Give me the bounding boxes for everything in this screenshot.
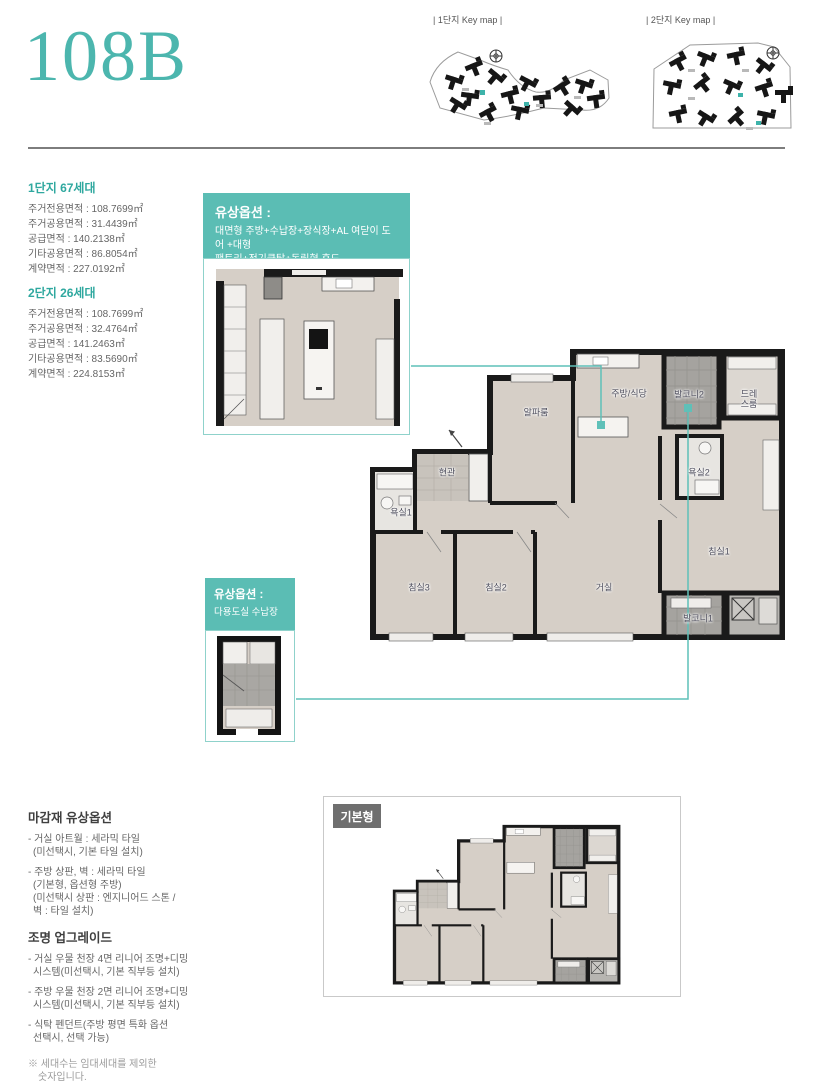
keymap1-label: | 1단지 Key map |: [433, 13, 502, 26]
note-line: 선택시, 선택 가능): [28, 1032, 233, 1045]
footnote-line2: 숫자입니다.: [28, 1071, 233, 1083]
stat-row: 계약면적 : 224.8153㎡: [28, 367, 143, 382]
stats-complex2: 2단지 26세대 주거전용면적 : 108.7699㎡ 주거공용면적 : 32.…: [28, 284, 143, 382]
stat-row: 기타공용면적 : 83.5690㎡: [28, 352, 143, 367]
main-floor-plan: [365, 340, 795, 650]
note-line: - 거실 아트월 : 세라믹 타일: [28, 833, 233, 846]
keymap2-site-plan: [638, 35, 803, 135]
note-line: 시스템(미선택시, 기본 직부등 설치): [28, 999, 233, 1012]
room-label-bath2: 욕실2: [688, 466, 710, 479]
stats-complex1: 1단지 67세대 주거전용면적 : 108.7699㎡ 주거공용면적 : 31.…: [28, 179, 143, 277]
stat-row: 계약면적 : 227.0192㎡: [28, 262, 143, 277]
room-label-bath1: 욕실1: [390, 506, 412, 519]
keymap1-site-plan: [424, 36, 614, 130]
stat-row: 주거전용면적 : 108.7699㎡: [28, 202, 143, 217]
note-line: - 주방 우물 천장 2면 리니어 조명+디밍: [28, 986, 233, 999]
stat-row: 주거공용면적 : 31.4439㎡: [28, 217, 143, 232]
room-label-living: 거실: [596, 581, 613, 594]
stat-row: 기타공용면적 : 86.8054㎡: [28, 247, 143, 262]
room-label-bedroom2: 침실2: [485, 581, 507, 594]
note-line: (미선택시, 기본 타일 설치): [28, 846, 233, 859]
room-label-balcony2: 발코니2: [674, 388, 704, 401]
note-line: (기본형, 옵션형 주방): [28, 879, 233, 892]
room-label-entrance: 현관: [439, 466, 456, 479]
utility-option-inset: [205, 630, 295, 742]
lighting-options-heading: 조명 업그레이드: [28, 932, 233, 945]
room-label-balcony1: 발코니1: [683, 612, 713, 625]
kitchen-option-title: 유상옵션 :: [215, 202, 398, 221]
utility-option-callout: 유상옵션 : 다용도실 수납장: [205, 578, 295, 630]
notes-block: 마감재 유상옵션 - 거실 아트월 : 세라믹 타일 (미선택시, 기본 타일 …: [28, 812, 233, 1083]
stat-row: 공급면적 : 140.2138㎡: [28, 232, 143, 247]
room-label-dressroom: 드레스룸: [737, 389, 761, 409]
footnote: ※ 세대수는 임대세대를 제외한 숫자입니다.: [28, 1058, 233, 1083]
stat-row: 공급면적 : 141.2463㎡: [28, 337, 143, 352]
note-line: 시스템(미선택시, 기본 직부등 설치): [28, 966, 233, 979]
footnote-line1: ※ 세대수는 임대세대를 제외한: [28, 1058, 233, 1071]
note-line: (미선택시 상판 : 엔지니어드 스톤 /: [28, 892, 233, 905]
utility-inset-plan: [206, 631, 293, 740]
note-line: - 식탁 펜던트(주방 평면 특화 옵션: [28, 1019, 233, 1032]
room-label-kitchen: 주방/식당: [611, 387, 647, 400]
room-label-bedroom3: 침실3: [408, 581, 430, 594]
kitchen-option-desc-line1: 대면형 주방+수납장+장식장+AL 여닫이 도어 +대형: [215, 225, 398, 253]
page-title: 108B: [24, 20, 188, 92]
stats-complex1-heading: 1단지 67세대: [28, 179, 143, 196]
basic-type-floor-plan: [390, 820, 626, 990]
note-line: 벽 : 타일 설치): [28, 905, 233, 918]
kitchen-option-inset: [203, 258, 410, 435]
room-label-alpha: 알파룸: [524, 406, 549, 419]
room-label-bedroom1: 침실1: [708, 545, 730, 558]
stat-row: 주거공용면적 : 32.4764㎡: [28, 322, 143, 337]
basic-type-label: 기본형: [333, 804, 381, 828]
note-line: - 주방 상판, 벽 : 세라믹 타일: [28, 866, 233, 879]
kitchen-option-callout: 유상옵션 : 대면형 주방+수납장+장식장+AL 여닫이 도어 +대형 팬트리+…: [203, 193, 410, 258]
utility-option-desc: 다용도실 수납장: [214, 606, 286, 620]
brochure-page: 108B | 1단지 Key map | | 2단지 Key map |: [0, 0, 827, 1083]
stat-row: 주거전용면적 : 108.7699㎡: [28, 307, 143, 322]
note-line: - 거실 우물 천장 4면 리니어 조명+디밍: [28, 953, 233, 966]
keymap2-label: | 2단지 Key map |: [646, 13, 715, 26]
finish-options-heading: 마감재 유상옵션: [28, 812, 233, 825]
utility-option-title: 유상옵션 :: [214, 586, 286, 602]
stats-complex2-heading: 2단지 26세대: [28, 284, 143, 301]
title-divider: [28, 147, 785, 149]
kitchen-inset-plan: [204, 259, 408, 433]
